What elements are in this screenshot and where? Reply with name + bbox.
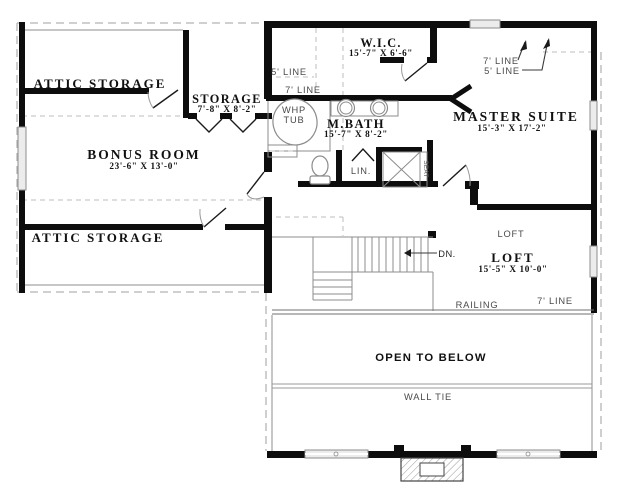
label-master-suite: MASTER SUITE — [453, 109, 579, 124]
window-top-wall — [470, 20, 500, 28]
label-5ft-line-wic: 5' LINE — [271, 67, 307, 77]
storage-double-doors — [196, 119, 256, 132]
fireplace — [401, 458, 463, 481]
label-bonus-room-dims: 23'-6" X 13'-0" — [109, 161, 178, 171]
toilet — [310, 156, 330, 184]
label-7ft-line-master: 7' LINE — [483, 56, 519, 66]
floor-plan-drawing: ATTIC STORAGE STORAGE 7'-8" X 8'-2" W.I.… — [0, 0, 625, 495]
window-bottom-left — [305, 450, 368, 458]
label-7ft-line-bath: 7' LINE — [285, 85, 321, 95]
label-wic-dims: 15'-7" X 6'-6" — [349, 48, 413, 58]
label-attic-storage-bottom: ATTIC STORAGE — [32, 230, 165, 245]
label-open-to-below: OPEN TO BELOW — [375, 352, 486, 364]
window-left-wall — [18, 127, 26, 190]
label-wall-tie: WALL TIE — [404, 392, 452, 402]
label-5ft-line-master: 5' LINE — [484, 66, 520, 76]
attic-storage-bottom-door — [200, 208, 226, 227]
label-loft-tag: LOFT — [498, 229, 525, 239]
floor-plan-canvas: ATTIC STORAGE STORAGE 7'-8" X 8'-2" W.I.… — [0, 0, 625, 495]
label-7ft-line-loft: 7' LINE — [537, 296, 573, 306]
linen-bifold-door — [352, 149, 374, 161]
labels: ATTIC STORAGE STORAGE 7'-8" X 8'-2" W.I.… — [32, 36, 579, 402]
label-down: DN. — [438, 249, 456, 259]
label-storage-dims: 7'-8" X 8'-2" — [198, 104, 257, 114]
window-right-wall-upper — [590, 101, 597, 130]
window-right-wall-loft — [590, 246, 597, 277]
attic-storage-top-door — [148, 90, 178, 108]
ceiling-line-leaders — [518, 38, 550, 70]
label-master-suite-dims: 15'-3" X 17'-2" — [477, 123, 546, 133]
label-tub: TUB — [284, 115, 305, 125]
label-loft: LOFT — [491, 250, 534, 265]
label-bonus-room: BONUS ROOM — [87, 147, 200, 162]
window-bottom-right — [497, 450, 560, 458]
label-linen: LIN. — [351, 166, 371, 176]
label-seat: SEAT — [422, 160, 429, 177]
sink-left — [338, 100, 355, 117]
label-mbath-dims: 15'-7" X 8'-2" — [324, 129, 388, 139]
wall-tie-line — [272, 384, 592, 388]
staircase — [272, 237, 433, 311]
bonus-room-door — [247, 172, 264, 199]
sink-right — [371, 100, 388, 117]
wic-door — [402, 63, 427, 81]
label-whp: WHP — [282, 105, 306, 115]
label-attic-storage-top: ATTIC STORAGE — [34, 76, 167, 91]
label-loft-dims: 15'-5" X 10'-0" — [478, 264, 547, 274]
label-railing: RAILING — [456, 300, 499, 310]
